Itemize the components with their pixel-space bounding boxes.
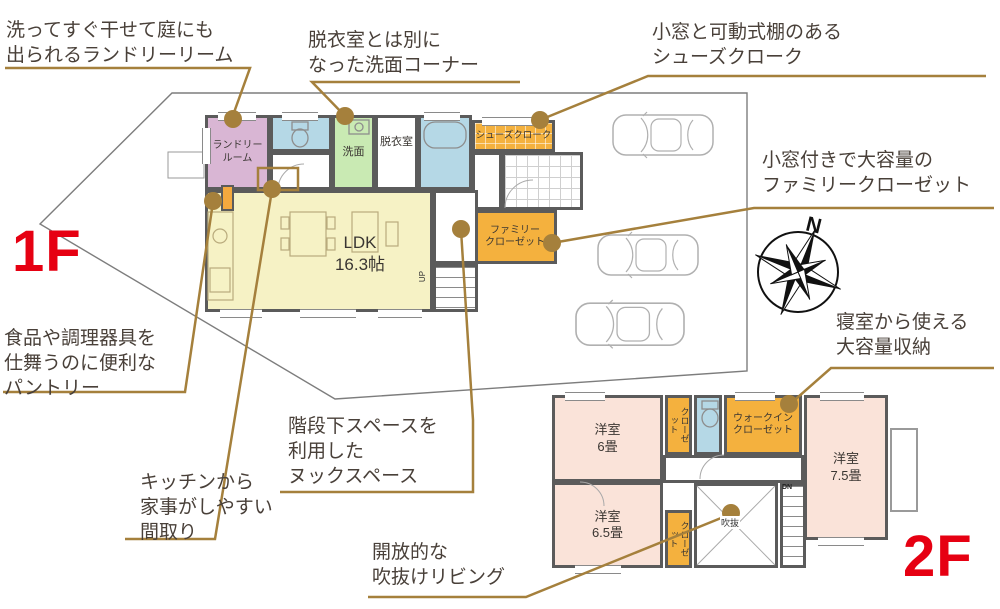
annotation-laundry: 洗ってすぐ干せて庭にも 出られるランドリーリーム bbox=[6, 18, 233, 68]
leader-laundry bbox=[5, 68, 250, 118]
leader-bedroom-storage bbox=[789, 368, 994, 405]
toilet-icon bbox=[292, 129, 308, 147]
fixture-icons bbox=[292, 120, 718, 427]
sink-icon bbox=[349, 120, 369, 134]
sofa-icon bbox=[352, 212, 378, 252]
leader-family-closet bbox=[552, 208, 994, 243]
leader-shoe-cloak bbox=[540, 76, 986, 120]
toilet-icon bbox=[702, 409, 718, 427]
annotation-wash-corner: 脱衣室とは別に なった洗面コーナー bbox=[308, 28, 479, 78]
furniture-icons bbox=[208, 212, 398, 300]
sink-icon bbox=[355, 123, 363, 131]
dining-table-icon bbox=[290, 212, 326, 256]
kitchen-counter-icon bbox=[208, 212, 233, 300]
annotation-bedroom-storage: 寝室から使える 大容量収納 bbox=[836, 310, 968, 360]
toilet-icon bbox=[702, 401, 718, 409]
annotation-nook: 階段下スペースを 利用した ヌックスペース bbox=[288, 414, 438, 489]
void-label: 吹抜 bbox=[720, 516, 740, 529]
annotation-pantry: 食品や調理器具を 仕舞うのに便利な パントリー bbox=[4, 326, 156, 401]
bathtub-icon bbox=[424, 122, 466, 148]
door-arc bbox=[700, 455, 724, 479]
side-table-icon bbox=[386, 222, 398, 246]
floor-label-1f: 1F bbox=[12, 218, 82, 285]
floor-plan-page: ランドリー ルーム 洗面 脱衣室 シューズクローク ファミリー クローゼット L… bbox=[0, 0, 1000, 609]
door-arc bbox=[505, 180, 533, 208]
door-arc bbox=[580, 482, 604, 506]
stairs-dn-label: DN bbox=[782, 484, 792, 491]
annotation-shoe-cloak: 小窓と可動式棚のある シューズクローク bbox=[652, 20, 842, 70]
annotation-void-living: 開放的な 吹抜けリビング bbox=[372, 540, 505, 590]
stove-icon bbox=[210, 268, 230, 292]
kitchen-sink-icon bbox=[213, 229, 227, 243]
annotation-kitchen: キッチンから 家事がしやすい 間取り bbox=[140, 470, 273, 545]
floor-label-2f: 2F bbox=[903, 523, 973, 590]
annotation-family-closet: 小窓付きで大容量の ファミリークローゼット bbox=[762, 148, 971, 198]
